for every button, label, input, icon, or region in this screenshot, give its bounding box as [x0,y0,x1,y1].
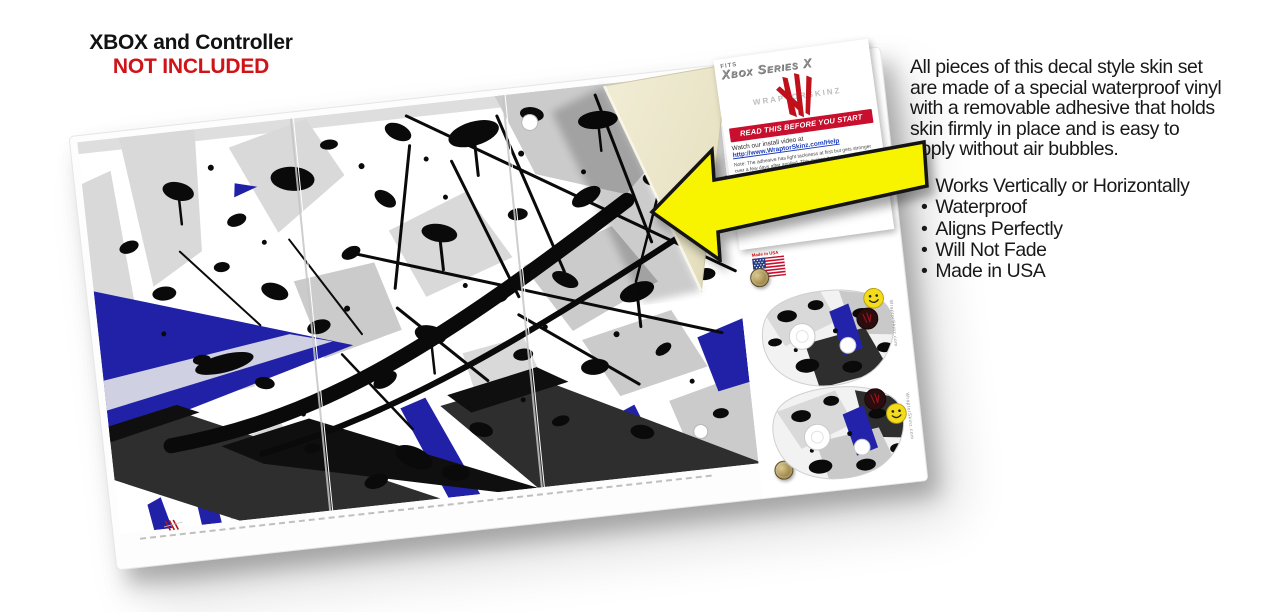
feature-item: Aligns Perfectly [921,219,1189,240]
not-included-notice: XBOX and Controller NOT INCLUDED [76,31,306,78]
description-line: are made of a special waterproof vinyl [910,78,1275,99]
feature-item: Waterproof [921,197,1189,218]
yellow-arrow-icon [646,138,932,262]
skin-sheet: FITS Xbox Series X WRAPTORSKINZ READ THI… [68,46,928,570]
notice-line2: NOT INCLUDED [76,55,306,79]
brand-mark-icon [162,517,185,533]
brand-dot-sticker-icon [863,387,887,411]
description-text: All pieces of this decal style skin set … [910,57,1275,160]
brand-dot-sticker-icon [855,306,879,330]
description-line: skin firmly in place and is easy to [910,119,1275,140]
feature-list: Works Vertically or Horizontally Waterpr… [921,176,1189,282]
description-line: apply without air bubbles. [910,139,1275,160]
controller-skin-pieces [739,272,925,494]
smiley-sticker-icon [885,402,908,425]
description-line: All pieces of this decal style skin set [910,57,1275,78]
feature-item: Works Vertically or Horizontally [921,176,1189,197]
claw-logo-icon [770,70,824,122]
notice-line1: XBOX and Controller [76,31,306,55]
product-promo-image: XBOX and Controller NOT INCLUDED All pie… [0,0,1280,612]
feature-item: Will Not Fade [921,240,1189,261]
feature-item: Made in USA [921,261,1189,282]
description-line: with a removable adhesive that holds [910,98,1275,119]
